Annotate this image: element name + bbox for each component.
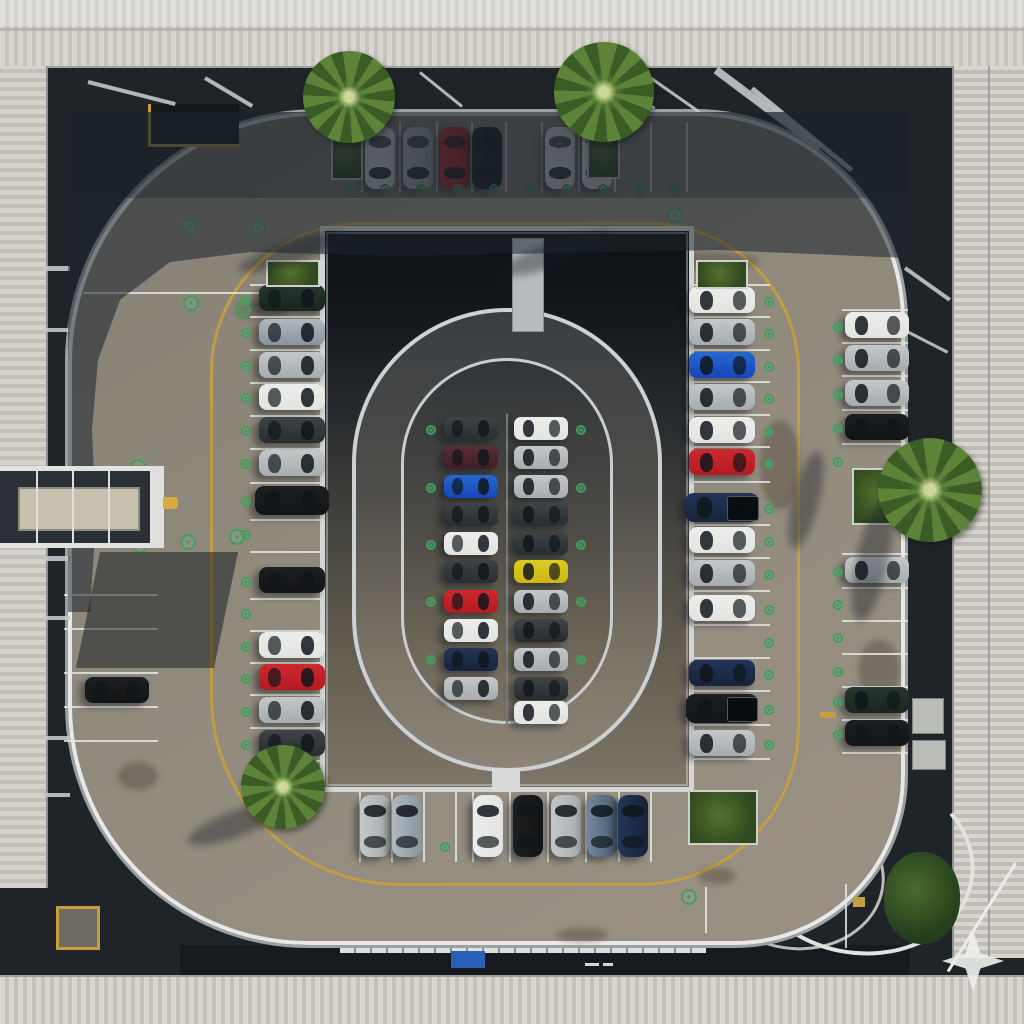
palm-tree-crown — [909, 469, 951, 511]
palm-tree-crown — [266, 770, 300, 804]
palm-tree — [554, 42, 654, 142]
palm-tree — [303, 51, 395, 143]
aerial-parking-structure-photo — [0, 0, 1024, 1024]
tree-canopy — [884, 852, 960, 944]
palm-tree — [241, 745, 325, 829]
palm-tree-crown — [331, 79, 368, 116]
tree-canopy-layer — [0, 0, 1024, 1024]
palm-tree-crown — [584, 72, 624, 112]
palm-tree — [878, 438, 982, 542]
